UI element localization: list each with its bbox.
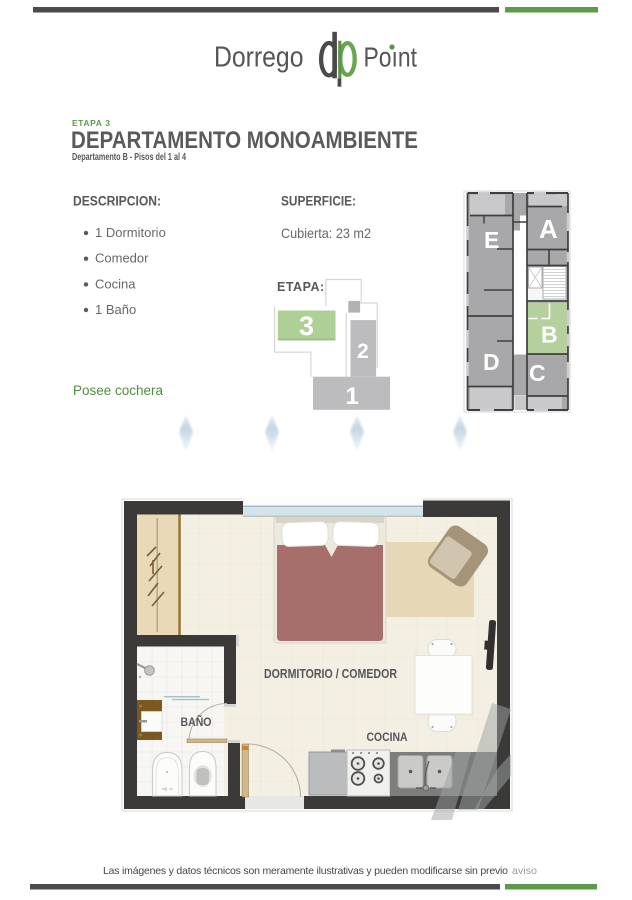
svg-text:COCINA: COCINA: [367, 732, 408, 744]
svg-text:SUPERFICIE:: SUPERFICIE:: [281, 194, 356, 209]
svg-text:aviso: aviso: [512, 865, 537, 877]
svg-text:DEPARTAMENTO MONOAMBIENTE: DEPARTAMENTO MONOAMBIENTE: [71, 127, 418, 154]
svg-text:Dorrego: Dorrego: [214, 41, 304, 73]
svg-text:Cubierta: 23 m2: Cubierta: 23 m2: [281, 225, 371, 241]
svg-text:Posee cochera: Posee cochera: [73, 383, 164, 398]
svg-text:2: 2: [357, 340, 369, 363]
svg-text:1 Dormitorio: 1 Dormitorio: [95, 225, 166, 240]
svg-text:Las imágenes y datos técnicos: Las imágenes y datos técnicos son merame…: [103, 865, 508, 877]
svg-text:ETAPA:: ETAPA:: [277, 280, 325, 294]
svg-text:Cocina: Cocina: [95, 276, 136, 291]
svg-text:BAÑO: BAÑO: [181, 716, 212, 729]
svg-text:C: C: [529, 360, 546, 386]
svg-text:1: 1: [346, 383, 359, 410]
svg-text:1 Baño: 1 Baño: [95, 302, 136, 317]
svg-text:DESCRIPCION:: DESCRIPCION:: [73, 194, 161, 209]
svg-text:Comedor: Comedor: [95, 251, 149, 266]
svg-text:3: 3: [299, 311, 314, 341]
svg-text:E: E: [484, 227, 499, 253]
svg-text:DORMITORIO / COMEDOR: DORMITORIO / COMEDOR: [264, 666, 397, 681]
svg-text:D: D: [483, 349, 500, 375]
svg-text:Departamento B - Pisos del 1 a: Departamento B - Pisos del 1 al 4: [72, 152, 186, 163]
svg-text:A: A: [539, 214, 558, 244]
svg-text:B: B: [541, 322, 558, 348]
